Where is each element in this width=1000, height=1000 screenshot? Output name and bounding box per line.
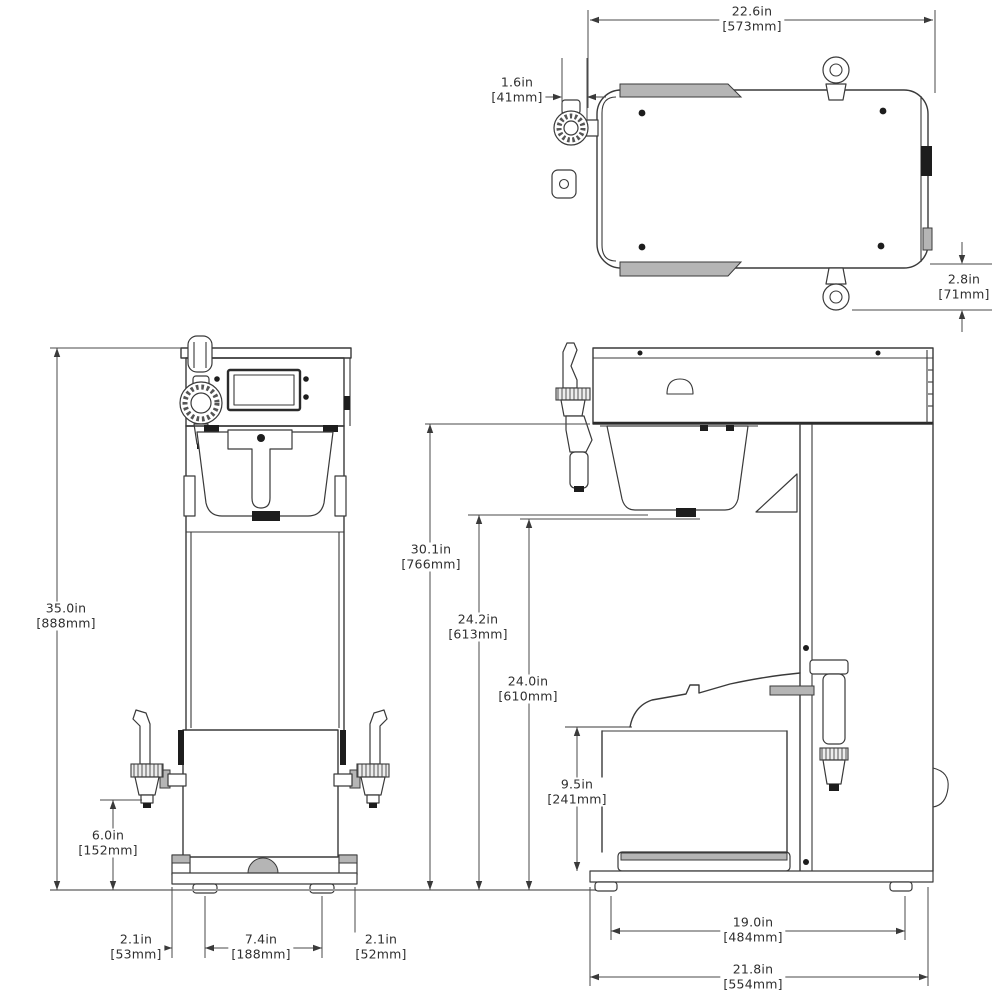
dim-inches: 19.0in xyxy=(723,916,782,931)
screw-icon xyxy=(639,108,887,251)
faucet-handle xyxy=(370,710,387,764)
faucet-spout xyxy=(829,784,839,791)
brew-funnel-side xyxy=(600,425,797,517)
lower-cabinet xyxy=(183,730,338,857)
front-base xyxy=(172,855,357,893)
dimension-label-faucet-height: 6.0in [152mm] xyxy=(75,829,140,858)
dimension-trunk-height xyxy=(425,424,590,890)
foot xyxy=(595,882,617,891)
funnel-guard-left xyxy=(184,476,195,516)
dim-mm: [41mm] xyxy=(491,90,542,105)
dimension-label-foot-span: 7.4in [188mm] xyxy=(228,933,293,962)
side-head xyxy=(593,348,933,424)
dim-mm: [241mm] xyxy=(547,792,606,807)
faucet-handle xyxy=(133,710,150,764)
display-screen xyxy=(228,370,300,410)
dim-inches: 7.4in xyxy=(231,933,290,948)
cord-bump xyxy=(933,768,948,807)
top-trim-strip xyxy=(620,84,741,97)
technical-drawing-page: 22.6in [573mm] 1.6in [41mm] 2.8in [71mm]… xyxy=(0,0,1000,1000)
dim-inches: 30.1in xyxy=(401,543,460,558)
front-view xyxy=(50,336,600,958)
server-profile xyxy=(565,660,848,852)
dimension-label-top-offset: 1.6in [41mm] xyxy=(488,76,545,105)
dim-inches: 35.0in xyxy=(36,602,95,617)
side-base xyxy=(590,852,933,891)
left-faucet xyxy=(131,710,186,808)
dimension-label-foot-offset-left: 2.1in [53mm] xyxy=(107,933,164,962)
dim-mm: [613mm] xyxy=(448,627,507,642)
dim-inches: 2.1in xyxy=(110,933,161,948)
column-faucet xyxy=(810,660,848,791)
dimension-label-clearance-b: 24.0in [610mm] xyxy=(495,675,560,704)
dim-inches: 9.5in xyxy=(547,778,606,793)
funnel-spout xyxy=(252,511,280,521)
dimension-label-clearance-a: 24.2in [613mm] xyxy=(445,613,510,642)
dim-inches: 24.2in xyxy=(448,613,507,628)
faucet-handle xyxy=(563,343,577,388)
dim-inches: 6.0in xyxy=(78,829,137,844)
brew-funnel-front xyxy=(184,430,346,521)
front-faucet-top xyxy=(554,100,598,145)
dim-mm: [573mm] xyxy=(722,19,781,34)
dimension-label-depth-feet: 19.0in [484mm] xyxy=(720,916,785,945)
bottom-trim-strip xyxy=(620,262,741,276)
side-faucet-knob-top xyxy=(823,57,849,100)
dimension-label-overall-height: 35.0in [888mm] xyxy=(33,602,98,631)
funnel-stop xyxy=(756,474,797,512)
dim-inches: 21.8in xyxy=(723,963,782,978)
dim-inches: 2.8in xyxy=(938,273,989,288)
dim-mm: [53mm] xyxy=(110,947,161,962)
dimension-label-side-protrusion: 2.8in [71mm] xyxy=(935,273,992,302)
dimension-clearance-b xyxy=(520,519,700,890)
faucet-spout xyxy=(143,803,151,808)
dim-inches: 1.6in xyxy=(491,76,542,91)
rear-connector xyxy=(923,228,932,250)
dim-mm: [152mm] xyxy=(78,843,137,858)
mounting-tab xyxy=(552,170,576,198)
rear-column xyxy=(800,424,948,871)
faucet-spout xyxy=(369,803,377,808)
side-faucet-knob-bottom xyxy=(823,268,849,310)
top-view xyxy=(540,10,992,332)
side-front-faucet xyxy=(556,343,592,492)
dim-mm: [610mm] xyxy=(498,689,557,704)
funnel-spout xyxy=(676,508,696,517)
dim-mm: [888mm] xyxy=(36,616,95,631)
dim-inches: 22.6in xyxy=(722,5,781,20)
dim-mm: [484mm] xyxy=(723,930,782,945)
dimension-label-trunk-height: 30.1in [766mm] xyxy=(398,543,463,572)
top-view-body xyxy=(597,90,928,268)
dim-mm: [766mm] xyxy=(401,557,460,572)
dim-inches: 24.0in xyxy=(498,675,557,690)
side-view xyxy=(425,343,948,986)
dimension-label-depth-overall: 21.8in [554mm] xyxy=(720,963,785,992)
foot xyxy=(310,884,334,893)
dim-mm: [554mm] xyxy=(723,977,782,992)
dimension-label-top-width: 22.6in [573mm] xyxy=(719,5,784,34)
faucet-spout xyxy=(574,486,584,492)
handle-cutout xyxy=(667,379,693,394)
dim-inches: 2.1in xyxy=(355,933,406,948)
dimension-label-server-space: 9.5in [241mm] xyxy=(544,778,609,807)
funnel-guard-right xyxy=(335,476,346,516)
dim-mm: [71mm] xyxy=(938,287,989,302)
foot xyxy=(193,884,217,893)
dim-mm: [188mm] xyxy=(231,947,290,962)
dim-mm: [52mm] xyxy=(355,947,406,962)
drawing-canvas xyxy=(0,0,1000,1000)
vent-slots xyxy=(928,370,933,406)
dimension-label-foot-offset-right: 2.1in [52mm] xyxy=(352,933,409,962)
power-switch xyxy=(921,146,932,176)
foot xyxy=(890,882,912,891)
